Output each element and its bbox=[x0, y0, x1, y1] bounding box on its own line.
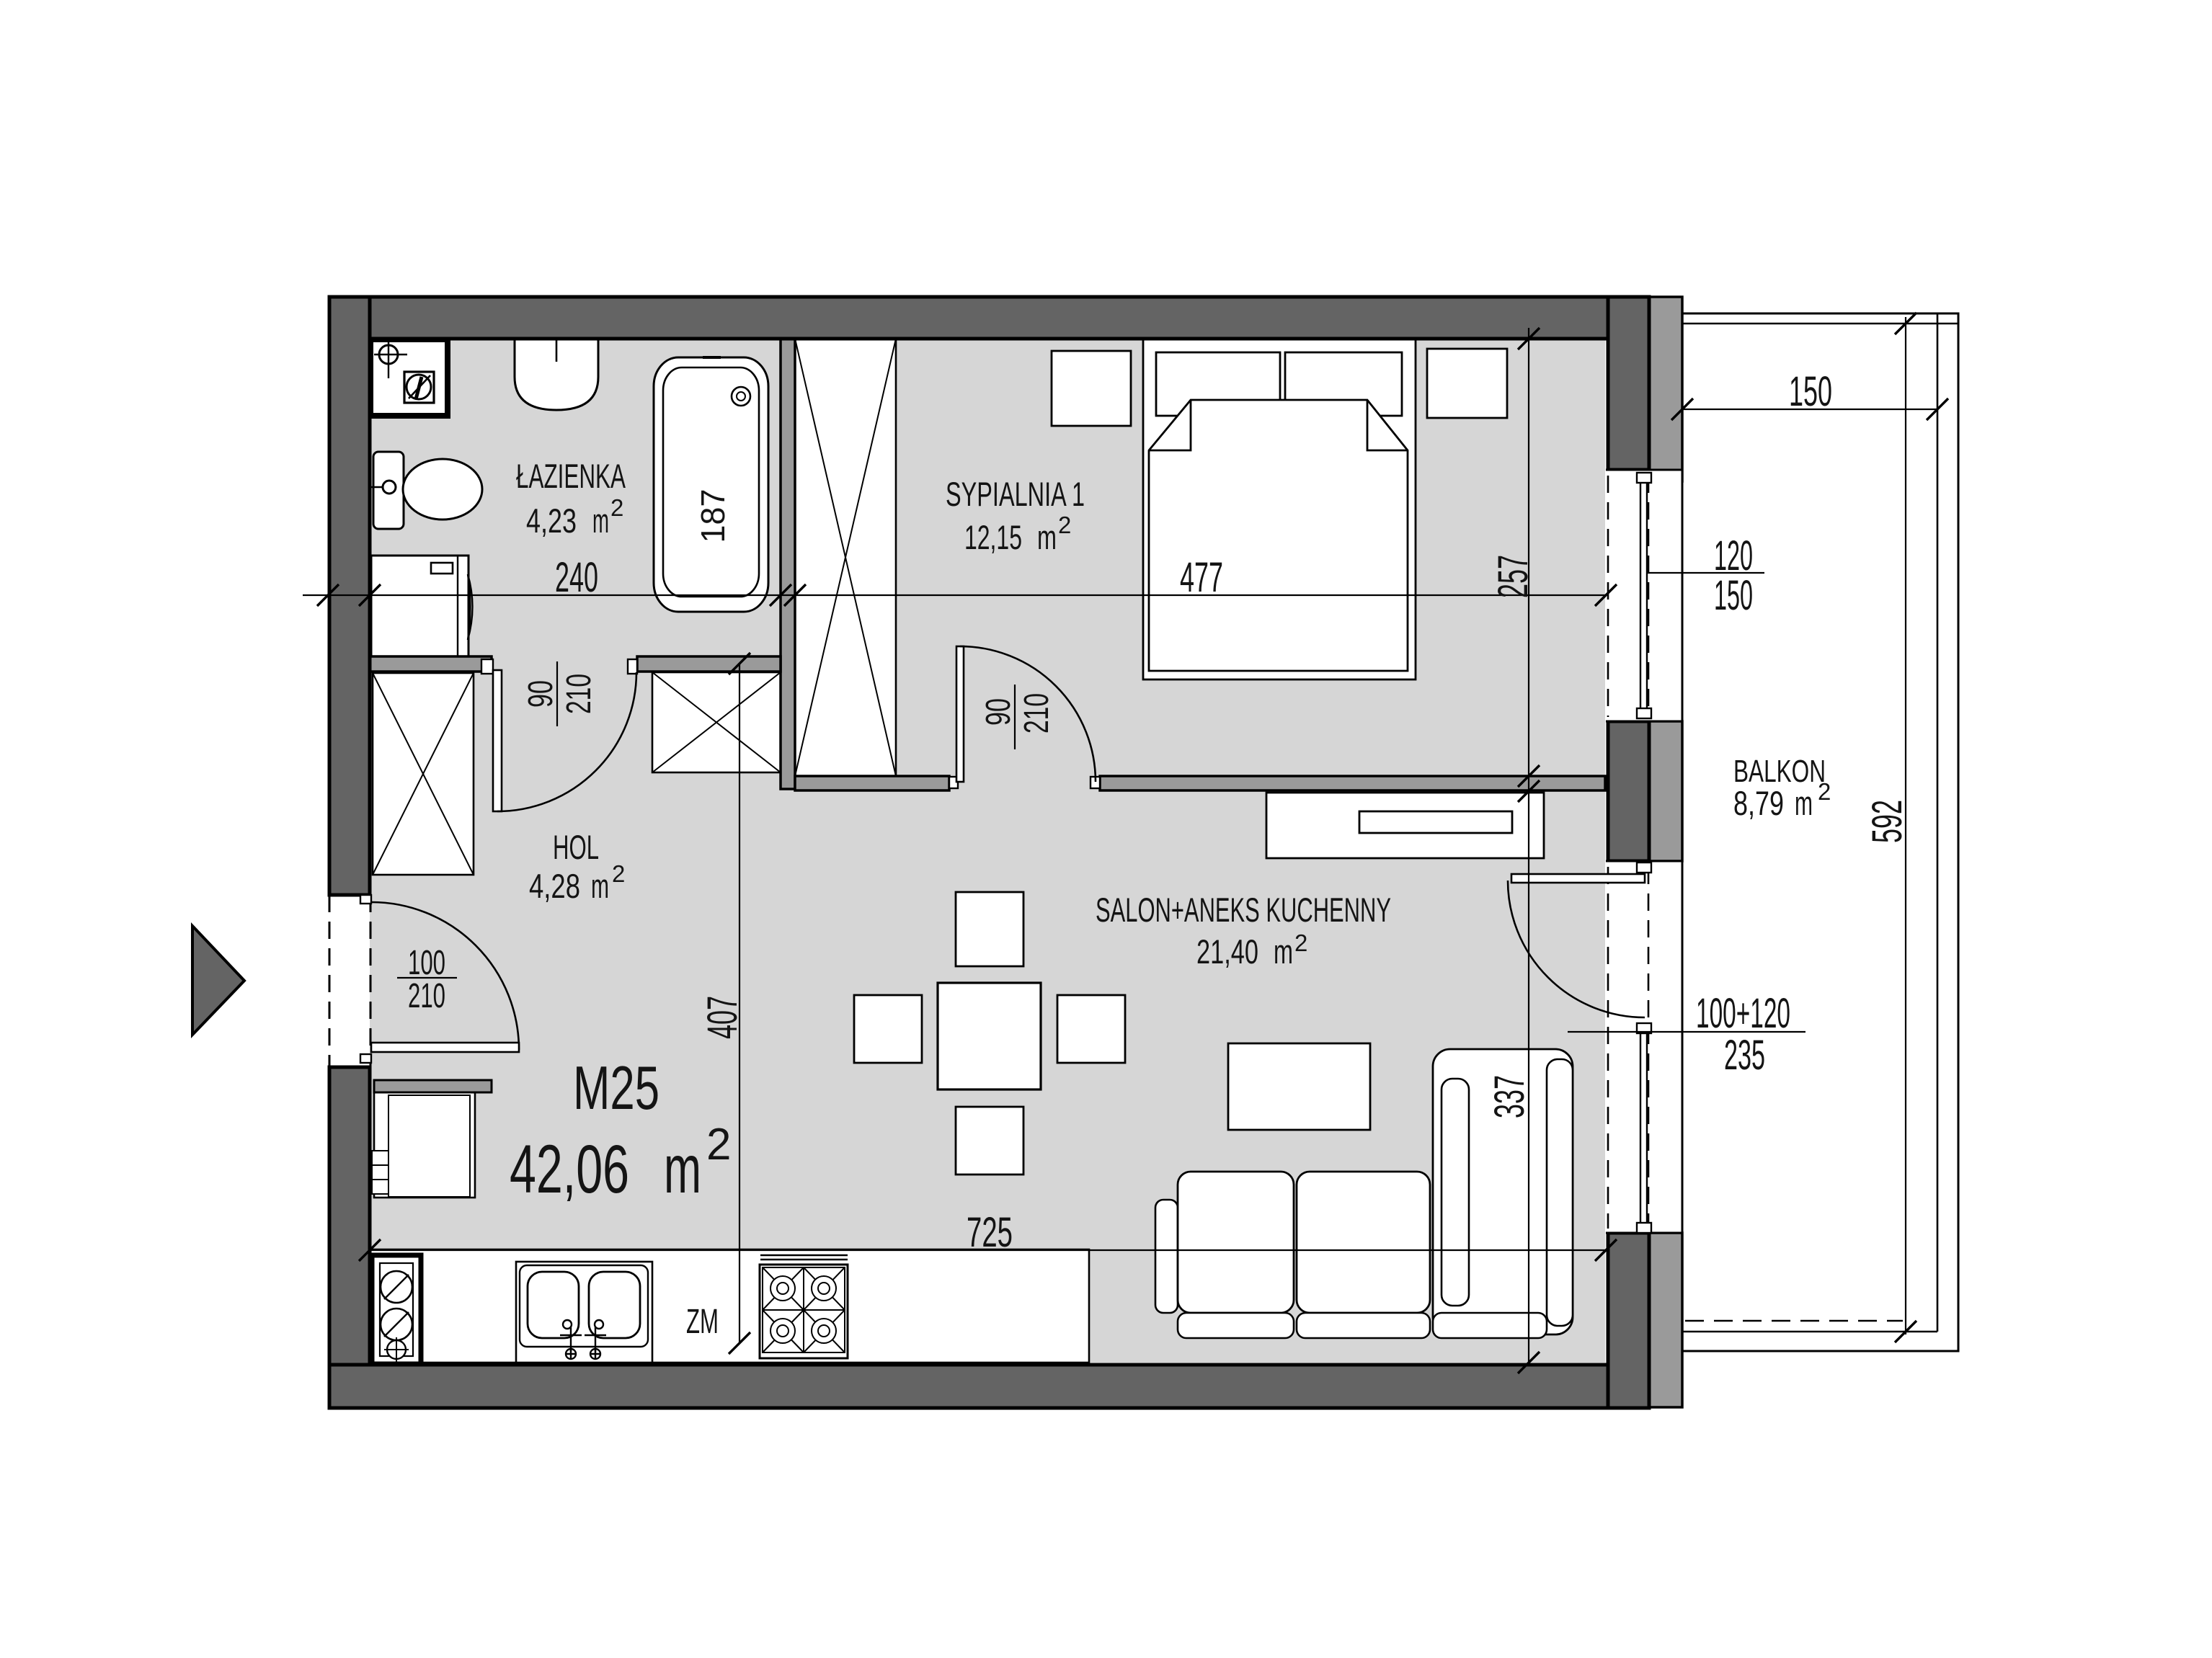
svg-text:2: 2 bbox=[1818, 778, 1831, 805]
svg-text:592: 592 bbox=[1864, 800, 1911, 843]
svg-text:187: 187 bbox=[694, 489, 732, 543]
svg-text:337: 337 bbox=[1486, 1075, 1533, 1118]
svg-text:SYPIALNIA 1: SYPIALNIA 1 bbox=[946, 475, 1085, 513]
svg-text:2: 2 bbox=[1294, 930, 1307, 956]
svg-text:100+120: 100+120 bbox=[1696, 990, 1790, 1037]
svg-text:210: 210 bbox=[1018, 693, 1056, 734]
svg-text:2: 2 bbox=[706, 1120, 731, 1169]
svg-text:m: m bbox=[1274, 932, 1293, 971]
svg-text:12,15: 12,15 bbox=[964, 518, 1022, 556]
svg-text:4,28: 4,28 bbox=[529, 867, 580, 905]
svg-text:150: 150 bbox=[1714, 572, 1753, 619]
svg-text:725: 725 bbox=[967, 1209, 1013, 1256]
svg-text:210: 210 bbox=[408, 977, 445, 1015]
svg-text:8,79: 8,79 bbox=[1733, 784, 1784, 822]
svg-text:407: 407 bbox=[699, 996, 746, 1039]
svg-text:477: 477 bbox=[1180, 554, 1223, 601]
svg-text:m: m bbox=[1037, 518, 1057, 556]
svg-text:4,23: 4,23 bbox=[526, 502, 577, 540]
svg-text:235: 235 bbox=[1724, 1032, 1765, 1079]
svg-text:257: 257 bbox=[1490, 555, 1537, 598]
svg-text:2: 2 bbox=[610, 494, 623, 521]
svg-text:m: m bbox=[592, 502, 609, 540]
svg-text:ŁAZIENKA: ŁAZIENKA bbox=[516, 457, 626, 495]
svg-text:210: 210 bbox=[560, 674, 598, 714]
svg-text:21,40: 21,40 bbox=[1196, 932, 1258, 971]
svg-text:ZM: ZM bbox=[686, 1303, 719, 1341]
svg-text:M25: M25 bbox=[573, 1054, 659, 1123]
svg-text:42,06: 42,06 bbox=[510, 1131, 629, 1208]
svg-text:240: 240 bbox=[555, 554, 598, 601]
svg-text:150: 150 bbox=[1789, 368, 1832, 415]
svg-text:SALON+ANEKS KUCHENNY: SALON+ANEKS KUCHENNY bbox=[1096, 891, 1391, 929]
svg-text:90: 90 bbox=[522, 680, 560, 708]
svg-text:m: m bbox=[591, 867, 609, 905]
svg-text:m: m bbox=[664, 1131, 701, 1208]
svg-text:m: m bbox=[1795, 784, 1813, 822]
svg-text:90: 90 bbox=[980, 698, 1018, 726]
svg-text:2: 2 bbox=[612, 860, 625, 887]
svg-text:2: 2 bbox=[1058, 512, 1071, 538]
svg-text:HOL: HOL bbox=[553, 828, 599, 866]
